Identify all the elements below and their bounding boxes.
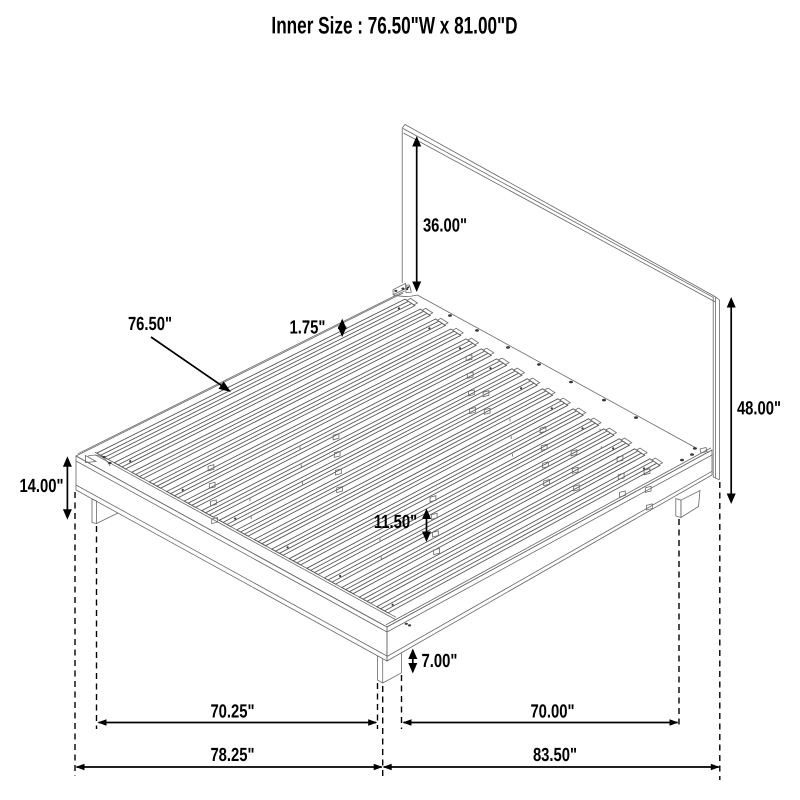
svg-text:83.50": 83.50" xyxy=(533,745,577,766)
svg-text:14.00": 14.00" xyxy=(19,476,63,497)
svg-text:76.50": 76.50" xyxy=(128,314,172,335)
svg-text:11.50": 11.50" xyxy=(374,512,417,533)
svg-text:70.25": 70.25" xyxy=(210,701,254,722)
svg-text:Inner Size : 76.50"W x 81.00"D: Inner Size : 76.50"W x 81.00"D xyxy=(271,12,517,39)
svg-text:7.00": 7.00" xyxy=(422,651,458,672)
svg-text:70.00": 70.00" xyxy=(530,701,574,722)
svg-text:36.00": 36.00" xyxy=(423,215,467,236)
svg-text:1.75": 1.75" xyxy=(290,317,326,338)
svg-text:48.00": 48.00" xyxy=(737,398,781,419)
svg-text:78.25": 78.25" xyxy=(210,745,254,766)
